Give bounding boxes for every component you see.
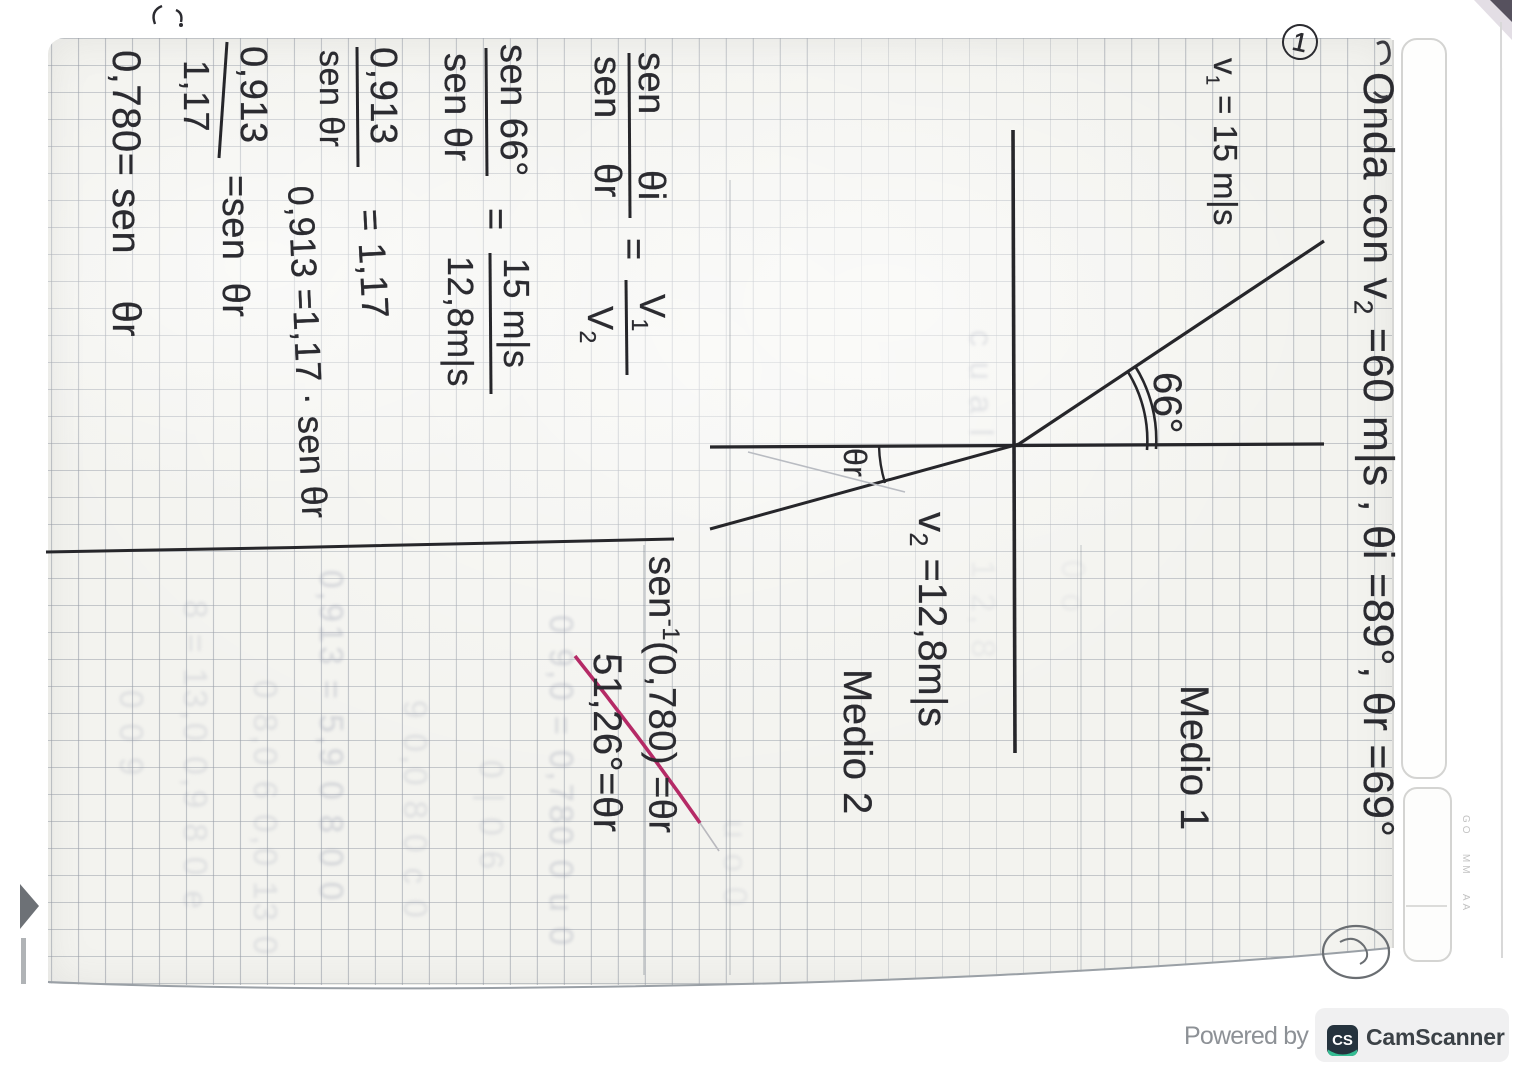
svg-text:CS: CS [1332,1032,1353,1049]
